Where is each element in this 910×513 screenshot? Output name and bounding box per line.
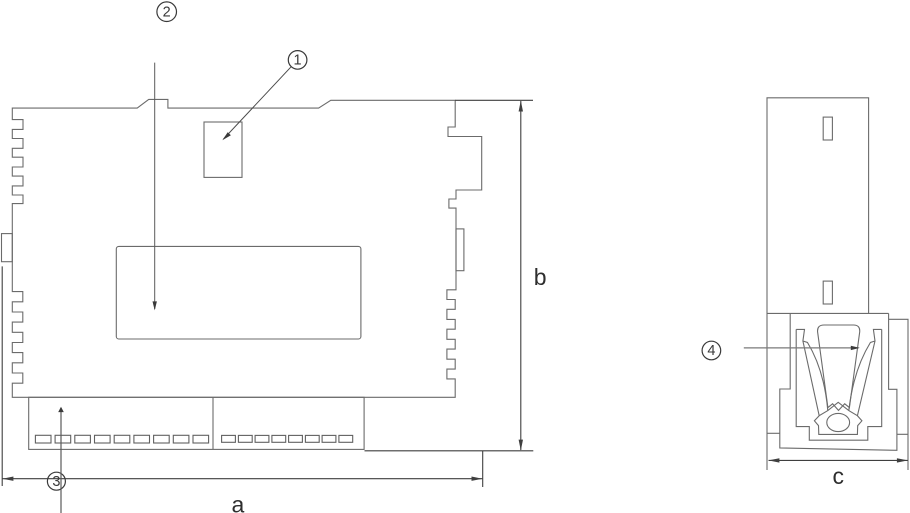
svg-text:1: 1 (294, 53, 302, 69)
svg-text:3: 3 (52, 474, 60, 490)
svg-text:c: c (833, 463, 845, 489)
svg-text:a: a (232, 492, 245, 513)
svg-text:b: b (534, 264, 547, 290)
svg-text:2: 2 (163, 5, 171, 21)
svg-text:4: 4 (707, 343, 715, 359)
